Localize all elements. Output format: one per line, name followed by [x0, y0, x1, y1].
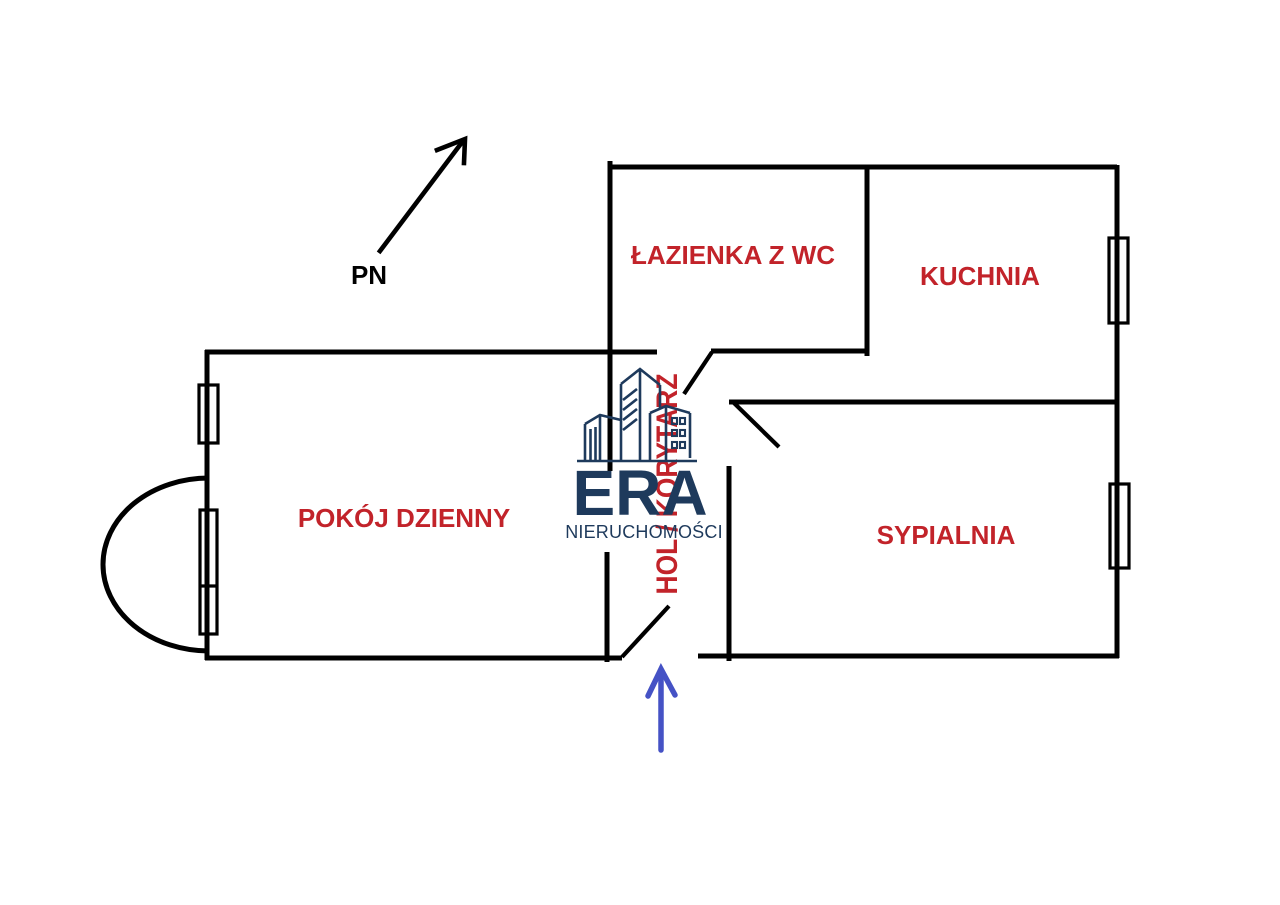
svg-text:POKÓJ DZIENNY: POKÓJ DZIENNY	[298, 503, 510, 533]
svg-text:SYPIALNIA: SYPIALNIA	[877, 520, 1016, 550]
svg-text:NIERUCHOMOŚCI: NIERUCHOMOŚCI	[565, 521, 723, 542]
svg-text:ŁAZIENKA Z WC: ŁAZIENKA Z WC	[631, 240, 835, 270]
svg-text:ERA: ERA	[572, 457, 707, 529]
svg-text:PN: PN	[351, 260, 387, 290]
svg-text:KUCHNIA: KUCHNIA	[920, 261, 1040, 291]
